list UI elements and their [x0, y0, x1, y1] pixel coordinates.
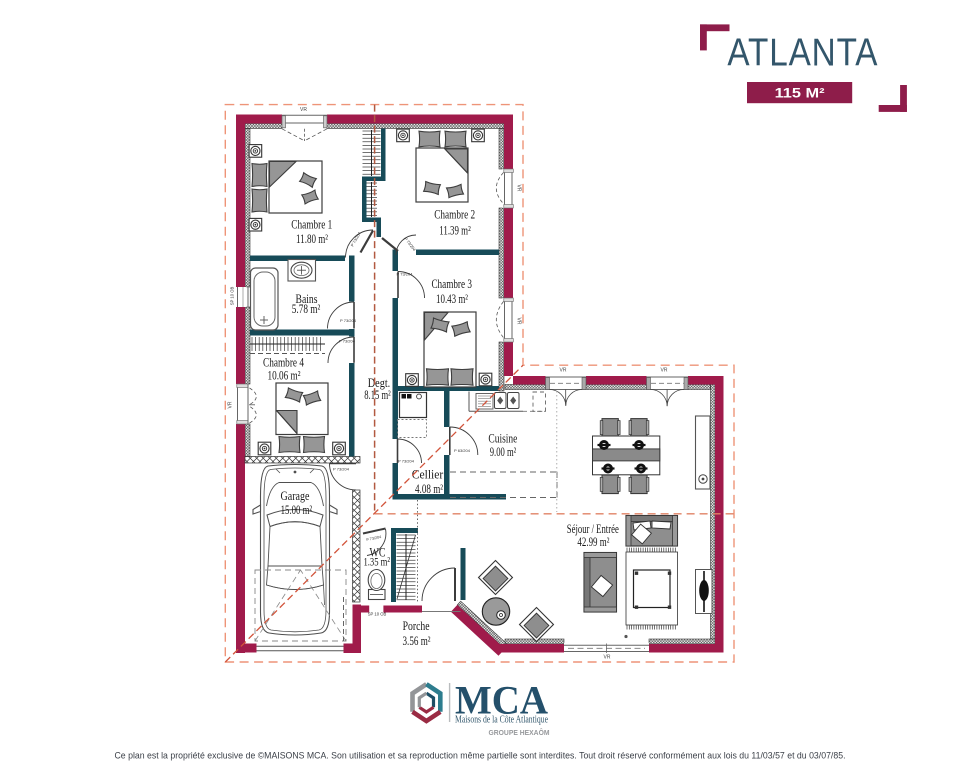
svg-text:Chambre 1: Chambre 1 [291, 217, 332, 232]
svg-text:P 73/204: P 73/204 [333, 467, 350, 472]
svg-text:11.80 m²: 11.80 m² [296, 232, 328, 246]
svg-text:Cellier: Cellier [412, 467, 444, 482]
svg-text:5.78 m²: 5.78 m² [292, 302, 321, 316]
svg-text:P 73/204: P 73/204 [340, 318, 357, 323]
svg-text:VR: VR [300, 107, 307, 113]
svg-text:Chambre 2: Chambre 2 [434, 207, 475, 222]
svg-text:1.35 m²: 1.35 m² [363, 555, 390, 569]
svg-text:P 63/204: P 63/204 [454, 448, 471, 453]
svg-text:42.99 m²: 42.99 m² [577, 535, 609, 549]
svg-text:8.15 m²: 8.15 m² [364, 388, 391, 402]
svg-text:9.00 m²: 9.00 m² [490, 445, 517, 459]
svg-text:11.39 m²: 11.39 m² [439, 224, 471, 238]
svg-text:Porche: Porche [403, 618, 430, 633]
svg-text:3.56 m²: 3.56 m² [403, 634, 431, 648]
svg-text:GROUPE HEXAÔM: GROUPE HEXAÔM [489, 728, 550, 737]
svg-text:VR: VR [560, 368, 567, 374]
svg-text:4.08 m²: 4.08 m² [415, 482, 443, 496]
svg-text:10.43 m²: 10.43 m² [436, 292, 468, 306]
svg-text:VR: VR [516, 318, 522, 325]
svg-text:VR: VR [516, 185, 522, 192]
svg-text:VR: VR [661, 368, 668, 374]
svg-text:Ce plan est la propriété exclu: Ce plan est la propriété exclusive de ©M… [115, 750, 846, 760]
svg-text:VR: VR [228, 401, 234, 408]
svg-text:15.00 m²: 15.00 m² [281, 503, 313, 517]
svg-text:Chambre 4: Chambre 4 [263, 355, 304, 370]
svg-text:Séjour / Entrée: Séjour / Entrée [567, 521, 619, 536]
svg-text:SP 10 OB: SP 10 OB [368, 611, 387, 616]
svg-text:Cuisine: Cuisine [488, 430, 517, 445]
svg-text:P 73/204: P 73/204 [398, 458, 415, 463]
svg-text:ATLANTA: ATLANTA [727, 32, 878, 75]
svg-text:115 M²: 115 M² [775, 85, 826, 100]
svg-text:10.06 m²: 10.06 m² [268, 368, 301, 382]
svg-text:SP 10 OB: SP 10 OB [230, 287, 235, 306]
svg-text:P 73/204: P 73/204 [397, 272, 414, 277]
svg-text:Chambre 3: Chambre 3 [431, 276, 472, 291]
svg-text:VR: VR [604, 655, 611, 661]
svg-text:P 73/204: P 73/204 [339, 339, 356, 344]
svg-text:Maisons de la Côte Atlantique: Maisons de la Côte Atlantique [455, 714, 548, 725]
svg-text:Garage: Garage [281, 488, 310, 503]
